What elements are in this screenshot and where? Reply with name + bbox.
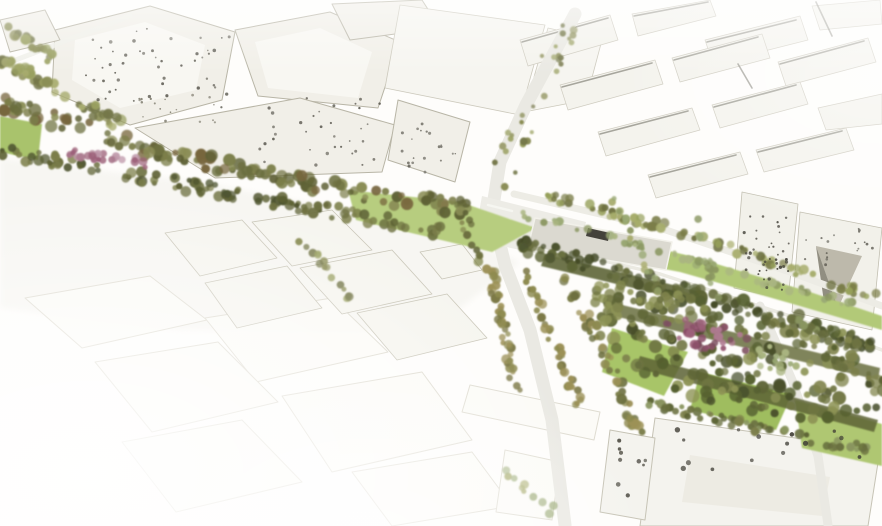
masterplan-scene-canvas	[0, 0, 882, 526]
white-atmosphere-washes	[0, 0, 882, 526]
wash-right-corner	[0, 0, 882, 526]
masterplan-aerial-rendering	[0, 0, 882, 526]
